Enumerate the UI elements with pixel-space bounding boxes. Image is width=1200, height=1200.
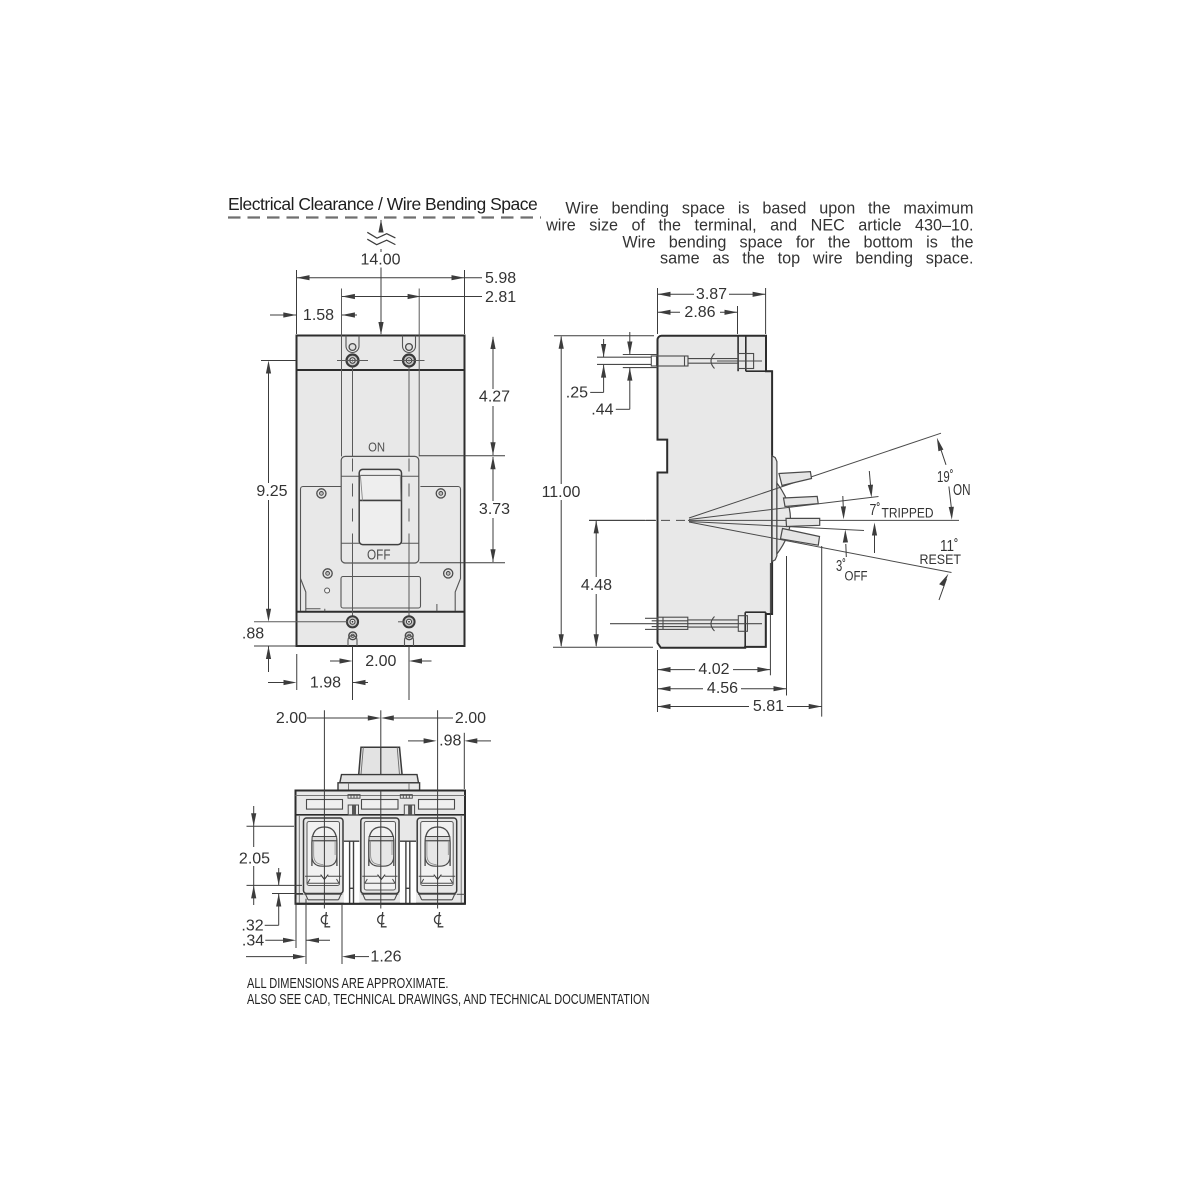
svg-text:3.73: 3.73 [479, 501, 510, 518]
svg-text:.44: .44 [591, 401, 613, 418]
svg-text:Electrical Clearance / Wire Be: Electrical Clearance / Wire Bending Spac… [228, 194, 537, 214]
svg-text:wire size of the terminal, and: wire size of the terminal, and NEC artic… [545, 217, 973, 235]
svg-text:.88: .88 [242, 626, 264, 643]
svg-text:.34: .34 [242, 932, 264, 949]
svg-text:4.48: 4.48 [581, 577, 612, 594]
svg-text:5.98: 5.98 [485, 270, 516, 287]
svg-text:19˚: 19˚ [937, 469, 954, 486]
svg-text:2.00: 2.00 [365, 653, 396, 670]
svg-text:ALL DIMENSIONS ARE APPROXIMATE: ALL DIMENSIONS ARE APPROXIMATE. [247, 975, 449, 992]
svg-text:11.00: 11.00 [542, 484, 581, 501]
svg-text:OFF: OFF [845, 569, 868, 584]
svg-text:TRIPPED: TRIPPED [882, 506, 934, 521]
svg-text:9.25: 9.25 [256, 483, 287, 500]
svg-text:ON: ON [368, 440, 385, 455]
svg-text:2.05: 2.05 [239, 850, 270, 867]
svg-text:4.02: 4.02 [698, 661, 729, 678]
svg-text:14.00: 14.00 [360, 252, 400, 269]
svg-text:same as the top wire bending s: same as the top wire bending space. [660, 250, 973, 268]
svg-text:2.00: 2.00 [455, 710, 486, 727]
svg-text:ALSO SEE CAD, TECHNICAL DRAWIN: ALSO SEE CAD, TECHNICAL DRAWINGS, AND TE… [247, 991, 650, 1008]
svg-text:1.26: 1.26 [370, 948, 401, 965]
svg-text:4.56: 4.56 [707, 680, 738, 697]
svg-text:OFF: OFF [367, 548, 391, 564]
svg-text:7˚: 7˚ [870, 502, 881, 519]
svg-text:2.00: 2.00 [276, 710, 307, 727]
svg-text:Wire bending space is based up: Wire bending space is based upon the max… [565, 200, 973, 218]
svg-text:4.27: 4.27 [479, 389, 510, 406]
svg-text:5.81: 5.81 [753, 698, 784, 715]
svg-text:3.87: 3.87 [696, 286, 727, 303]
svg-text:2.81: 2.81 [485, 289, 516, 306]
svg-text:.25: .25 [566, 384, 588, 401]
svg-text:2.86: 2.86 [684, 304, 715, 321]
svg-text:RESET: RESET [920, 552, 962, 567]
svg-text:ON: ON [953, 482, 971, 499]
svg-text:1.58: 1.58 [303, 307, 334, 324]
svg-text:.98: .98 [439, 733, 461, 750]
svg-text:1.98: 1.98 [310, 674, 341, 691]
